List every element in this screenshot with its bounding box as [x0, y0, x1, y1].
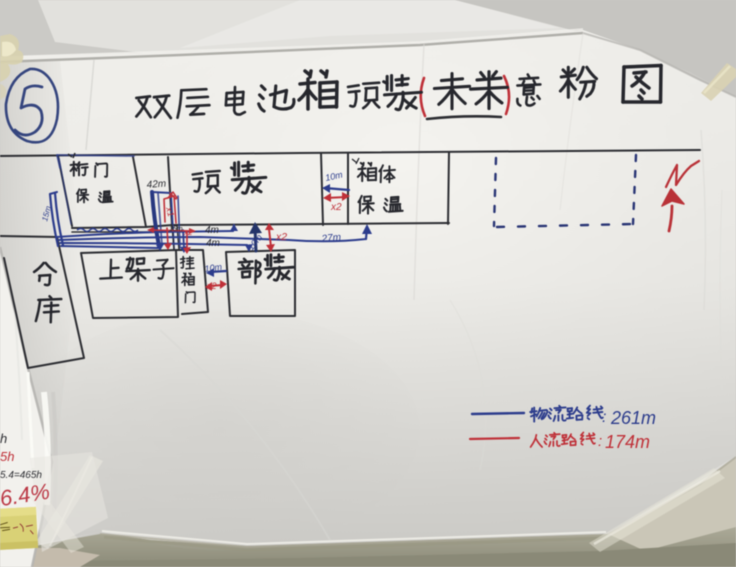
svg-text:x2: x2	[330, 202, 342, 213]
svg-text:174m: 174m	[605, 432, 650, 452]
svg-text:5h: 5h	[0, 449, 14, 464]
svg-text:4m: 4m	[205, 225, 219, 236]
svg-text:x2: x2	[206, 281, 217, 291]
svg-text:x2: x2	[275, 231, 287, 243]
svg-text:27m: 27m	[320, 232, 341, 245]
svg-text:h: h	[0, 431, 7, 446]
svg-text:42m: 42m	[146, 179, 166, 191]
svg-text:15m: 15m	[169, 226, 183, 233]
svg-text:4m: 4m	[206, 238, 220, 249]
svg-text:261m: 261m	[610, 408, 656, 428]
svg-text::: :	[598, 433, 602, 450]
svg-text:x2: x2	[183, 228, 193, 237]
svg-text::: :	[602, 409, 606, 426]
svg-text:5.4=465h: 5.4=465h	[0, 470, 42, 481]
